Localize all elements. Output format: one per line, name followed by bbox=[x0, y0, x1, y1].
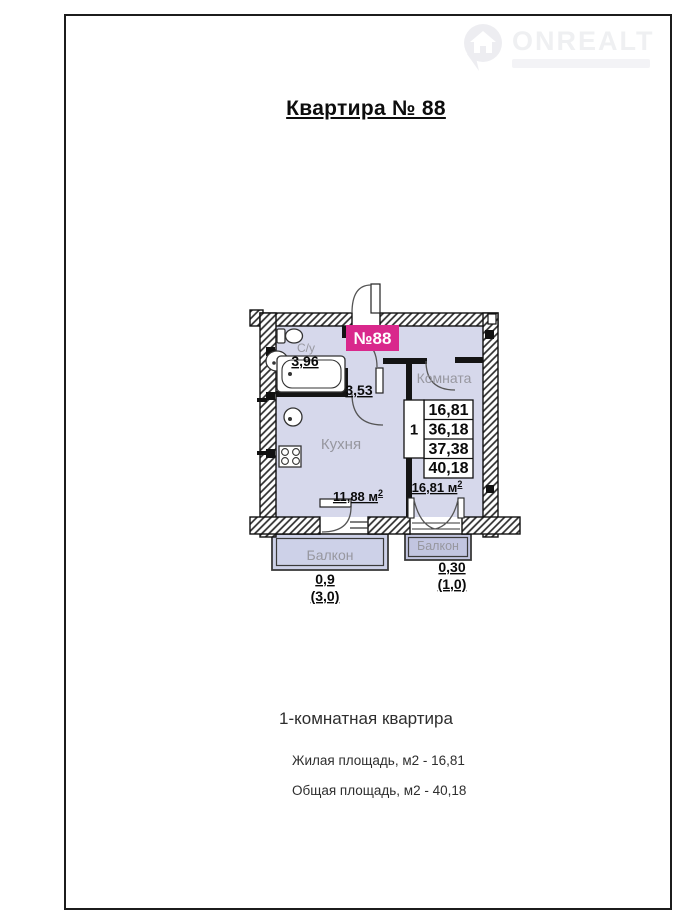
balcony-left-area: 0,9 bbox=[315, 571, 335, 587]
apartment-type-heading: 1-комнатная квартира bbox=[64, 709, 668, 729]
apartment-number-badge: №88 bbox=[346, 325, 399, 351]
bathroom-area: 3,96 bbox=[291, 353, 318, 369]
table-row-2: 36,18 bbox=[428, 422, 468, 439]
balcony-left-coef: (3,0) bbox=[311, 588, 340, 604]
apartment-number: №88 bbox=[354, 329, 392, 348]
room-area: 16,81 м2 bbox=[412, 479, 463, 495]
table-row-living: 16,81 bbox=[428, 402, 468, 419]
room-label: Комната bbox=[417, 370, 472, 386]
table-rooms-count: 1 bbox=[410, 422, 418, 439]
living-area-line: Жилая площадь, м2 - 16,81 bbox=[292, 753, 465, 768]
total-area-line: Общая площадь, м2 - 40,18 bbox=[292, 783, 466, 798]
stove-icon bbox=[279, 446, 301, 467]
balcony-right-label: Балкон bbox=[417, 539, 459, 553]
hall-area: 3,53 bbox=[345, 382, 372, 398]
balcony-right-coef: (1,0) bbox=[438, 576, 467, 592]
balcony-right-area: 0,30 bbox=[438, 559, 465, 575]
floorplan-page: ONREALT Квартира № 88 bbox=[0, 0, 679, 910]
balcony-left-label: Балкон bbox=[307, 547, 354, 563]
kitchen-sink-icon bbox=[284, 408, 302, 426]
kitchen-label: Кухня bbox=[321, 436, 361, 453]
table-row-total: 40,18 bbox=[428, 460, 468, 477]
floorplan-drawing: №88 1 16,81 36,18 37,38 40,18 С/у 3,96 3… bbox=[0, 0, 679, 910]
table-row-3: 37,38 bbox=[428, 441, 468, 458]
entrance-door bbox=[352, 284, 380, 313]
kitchen-area: 11,88 м2 bbox=[333, 488, 383, 504]
